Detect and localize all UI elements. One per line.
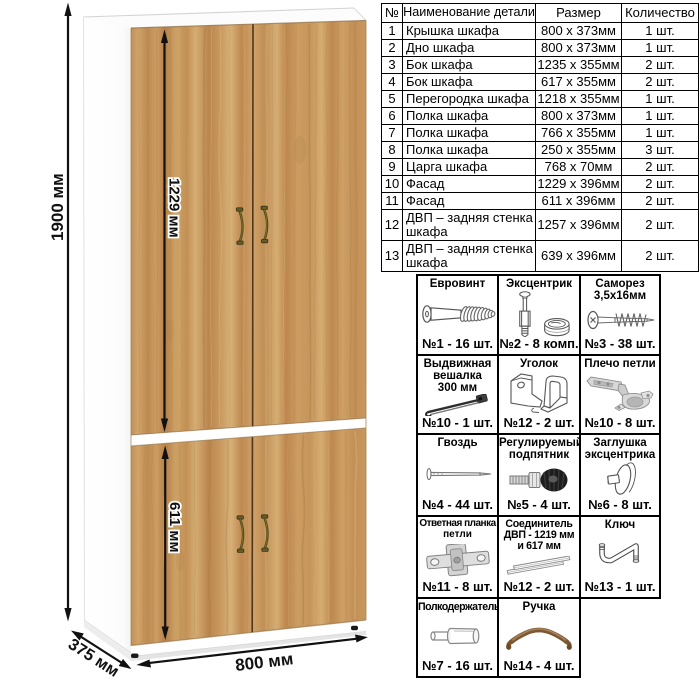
svg-text:1229 мм: 1229 мм <box>166 178 183 238</box>
svg-text:1900 мм: 1900 мм <box>48 173 67 241</box>
svg-text:800 мм: 800 мм <box>234 649 294 675</box>
svg-text:611 мм: 611 мм <box>166 502 183 553</box>
